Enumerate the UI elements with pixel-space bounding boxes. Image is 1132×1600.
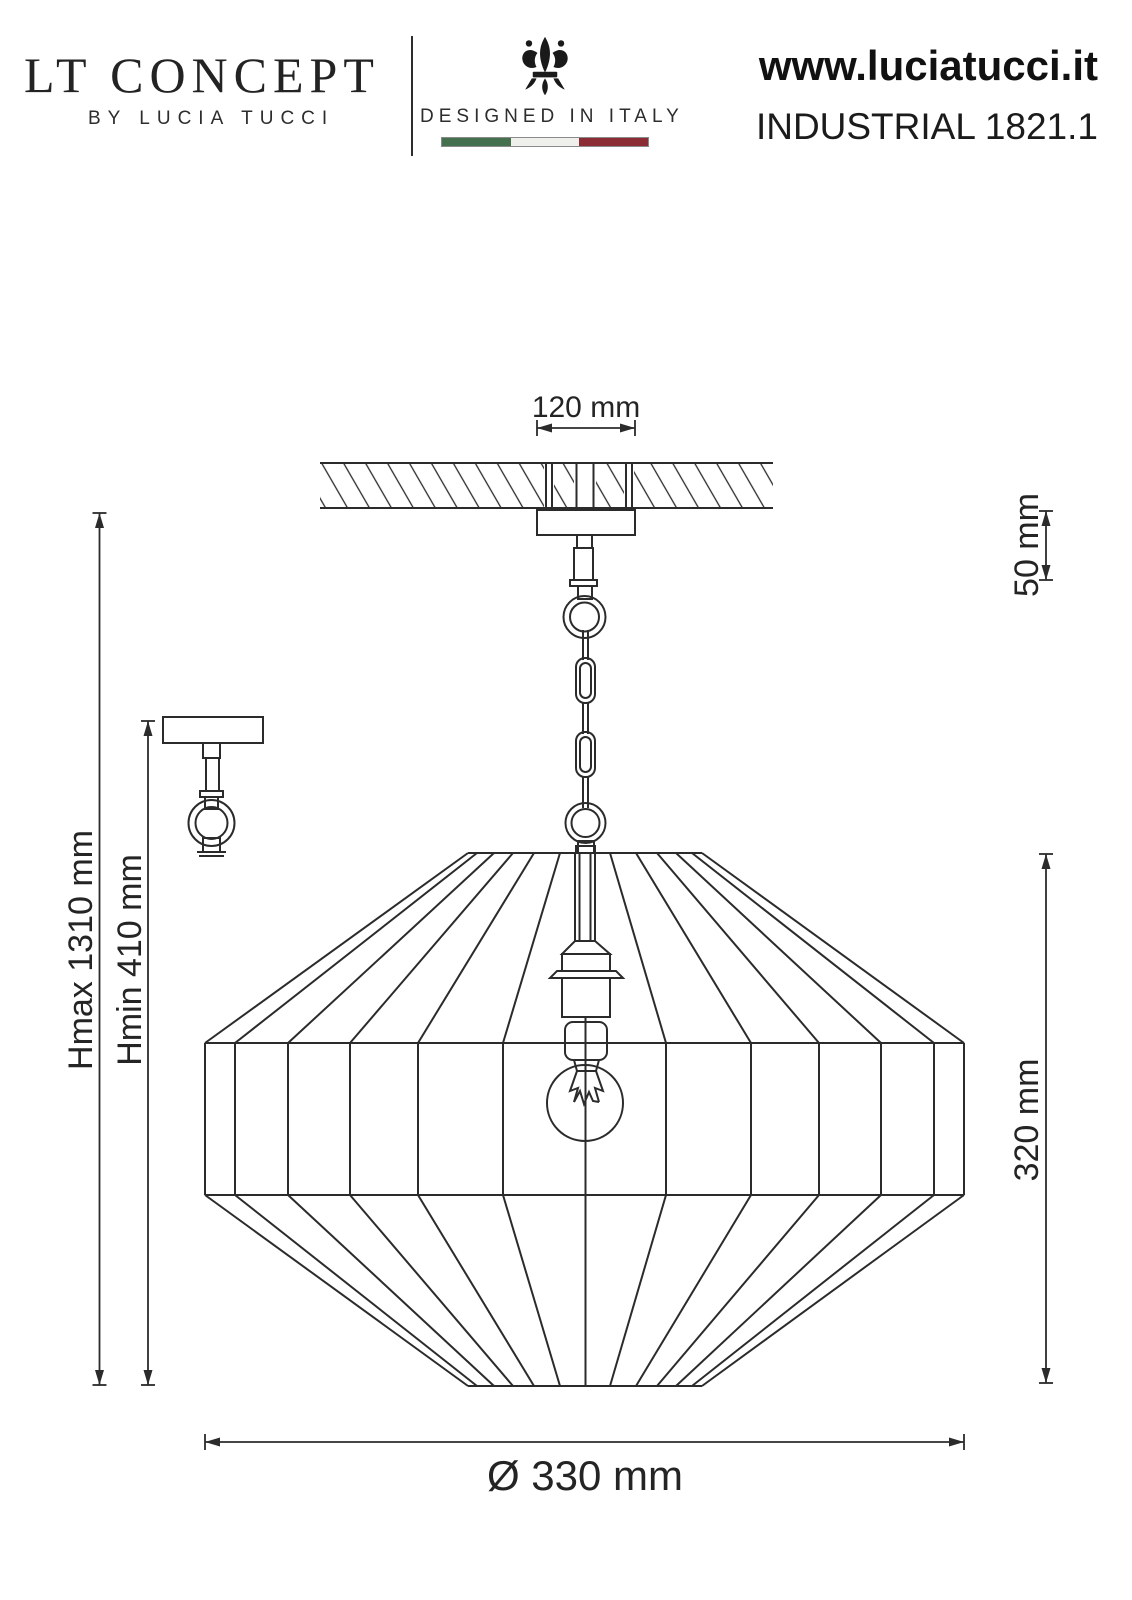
ceiling-section — [320, 463, 773, 508]
dimension-shade-height: 320 mm — [1008, 854, 1053, 1383]
dimension-height-max: Hmax 1310 mm — [62, 513, 107, 1385]
dimension-shade-diameter: Ø 330 mm — [205, 1434, 964, 1499]
svg-text:320 mm: 320 mm — [1008, 1059, 1046, 1182]
short-mount-detail — [163, 717, 263, 856]
canopy — [537, 510, 635, 599]
technical-drawing: 120 mm 50 mm Hmax 1310 mm Hmin 410 mm 32… — [0, 0, 1132, 1600]
dimension-canopy-height: 50 mm — [1008, 493, 1053, 597]
svg-text:120 mm: 120 mm — [532, 391, 640, 424]
svg-text:Hmax 1310 mm: Hmax 1310 mm — [62, 830, 100, 1070]
dimension-height-min: Hmin 410 mm — [111, 721, 155, 1385]
suspension-chain — [564, 596, 606, 853]
svg-text:Hmin 410 mm: Hmin 410 mm — [111, 854, 149, 1066]
socket-and-bulb — [547, 846, 623, 1386]
svg-text:Ø 330 mm: Ø 330 mm — [487, 1452, 683, 1499]
svg-text:50 mm: 50 mm — [1008, 493, 1046, 597]
dimension-canopy-width: 120 mm — [532, 391, 640, 436]
shade-facets-top — [235, 853, 934, 1043]
